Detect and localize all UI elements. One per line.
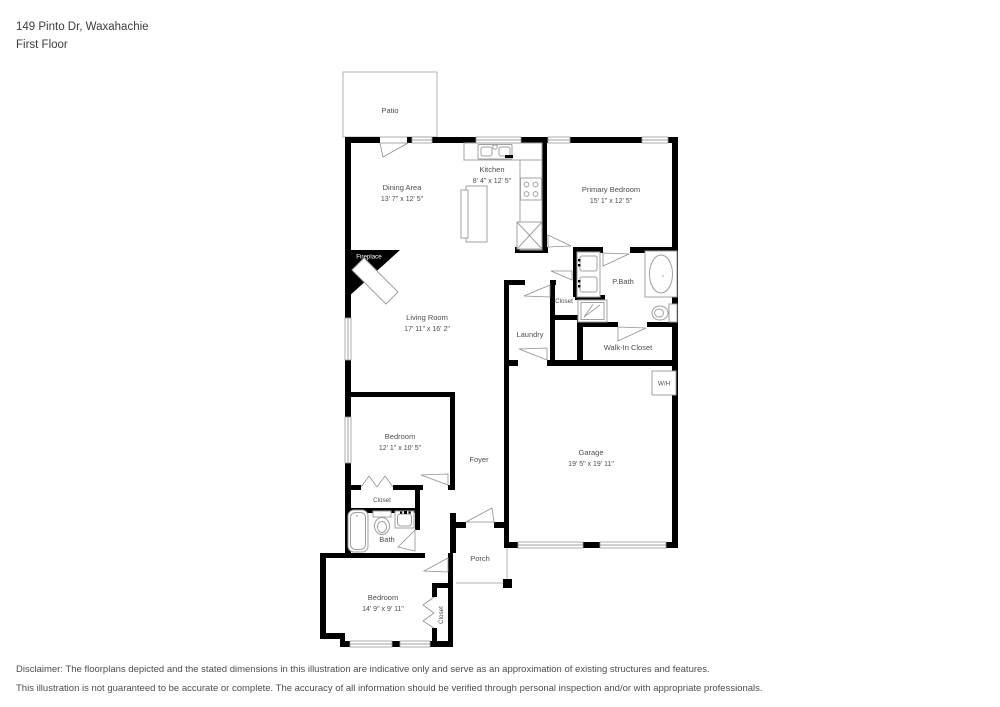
bedroom3-door bbox=[424, 558, 448, 572]
room-dims-bedroom2: 12' 1" x 10' 5" bbox=[379, 445, 422, 452]
room-label-foyer: Foyer bbox=[469, 455, 489, 464]
kitchen-island bbox=[461, 186, 487, 242]
primary-bedroom-door bbox=[548, 235, 571, 247]
sink-icon bbox=[395, 511, 414, 528]
room-dims-garage: 19' 5" x 19' 11" bbox=[568, 461, 614, 468]
room-label-patio: Patio bbox=[381, 106, 398, 115]
toilet-icon bbox=[652, 304, 677, 322]
laundry-door bbox=[524, 285, 550, 297]
shower-icon bbox=[578, 300, 607, 322]
room-dims-living: 17' 11" x 16' 2" bbox=[404, 326, 450, 333]
pbath-fixtures bbox=[577, 251, 677, 322]
walls bbox=[320, 137, 678, 647]
front-door bbox=[466, 508, 494, 522]
room-dims-bedroom3: 14' 9" x 9' 11" bbox=[362, 606, 404, 613]
room-label-living: Living Room bbox=[406, 313, 448, 322]
bathtub-icon bbox=[348, 510, 368, 552]
room-dims-primary-bedroom: 15' 1" x 12' 5" bbox=[590, 198, 633, 205]
fireplace-icon: Fireplace bbox=[347, 250, 400, 304]
room-label-walkin-closet: Walk-In Closet bbox=[604, 343, 653, 352]
room-label-porch: Porch bbox=[470, 554, 490, 563]
patio-door bbox=[380, 143, 408, 157]
kitchen-fixtures bbox=[461, 143, 542, 250]
room-label-dining: Dining Area bbox=[383, 183, 423, 192]
garage-entry-door bbox=[519, 348, 547, 360]
closet3-bifold-door bbox=[423, 597, 434, 628]
room-label-laundry: Laundry bbox=[516, 330, 543, 339]
stove-icon bbox=[521, 178, 542, 200]
floorplan-drawing: Fireplace bbox=[0, 0, 1000, 707]
floorplan-page: 149 Pinto Dr, Waxahachie First Floor bbox=[0, 0, 1000, 707]
double-vanity-icon bbox=[577, 252, 600, 297]
room-label-kitchen: Kitchen bbox=[479, 165, 504, 174]
hall-closet-door bbox=[551, 271, 572, 280]
room-label-bath: Bath bbox=[379, 535, 394, 544]
room-dims-dining: 13' 7" x 12' 5" bbox=[381, 196, 424, 203]
room-label-bedroom3: Bedroom bbox=[368, 593, 398, 602]
patio-outline bbox=[343, 72, 437, 137]
toilet-icon bbox=[373, 511, 391, 535]
closet2-bifold-door bbox=[361, 476, 393, 487]
disclaimer: Disclaimer: The floorplans depicted and … bbox=[16, 661, 763, 698]
disclaimer-line2: This illustration is not guaranteed to b… bbox=[16, 680, 763, 699]
water-heater-label: W/H bbox=[658, 381, 671, 388]
room-label-primary-bedroom: Primary Bedroom bbox=[582, 185, 640, 194]
fireplace-label: Fireplace bbox=[356, 254, 382, 261]
garage-door bbox=[600, 542, 666, 548]
disclaimer-line1: Disclaimer: The floorplans depicted and … bbox=[16, 661, 763, 680]
room-label-garage: Garage bbox=[578, 448, 603, 457]
refrigerator-icon bbox=[517, 222, 542, 249]
pbath-door bbox=[603, 253, 629, 266]
room-label-hall-closet: Closet bbox=[555, 298, 573, 305]
garage-door bbox=[518, 542, 583, 548]
room-label-closet2: Closet bbox=[373, 497, 391, 504]
walkin-closet-door bbox=[618, 327, 646, 341]
bedroom2-door bbox=[421, 474, 448, 485]
water-heater-icon: W/H bbox=[652, 371, 676, 395]
room-label-bedroom2: Bedroom bbox=[385, 432, 415, 441]
room-dims-kitchen: 8' 4" x 12' 5" bbox=[473, 178, 512, 185]
bathtub-icon bbox=[645, 251, 677, 297]
room-label-closet3: Closet bbox=[438, 606, 445, 624]
room-label-pbath: P.Bath bbox=[612, 277, 634, 286]
bath-door bbox=[398, 530, 415, 551]
dishwasher-mark bbox=[505, 155, 513, 158]
